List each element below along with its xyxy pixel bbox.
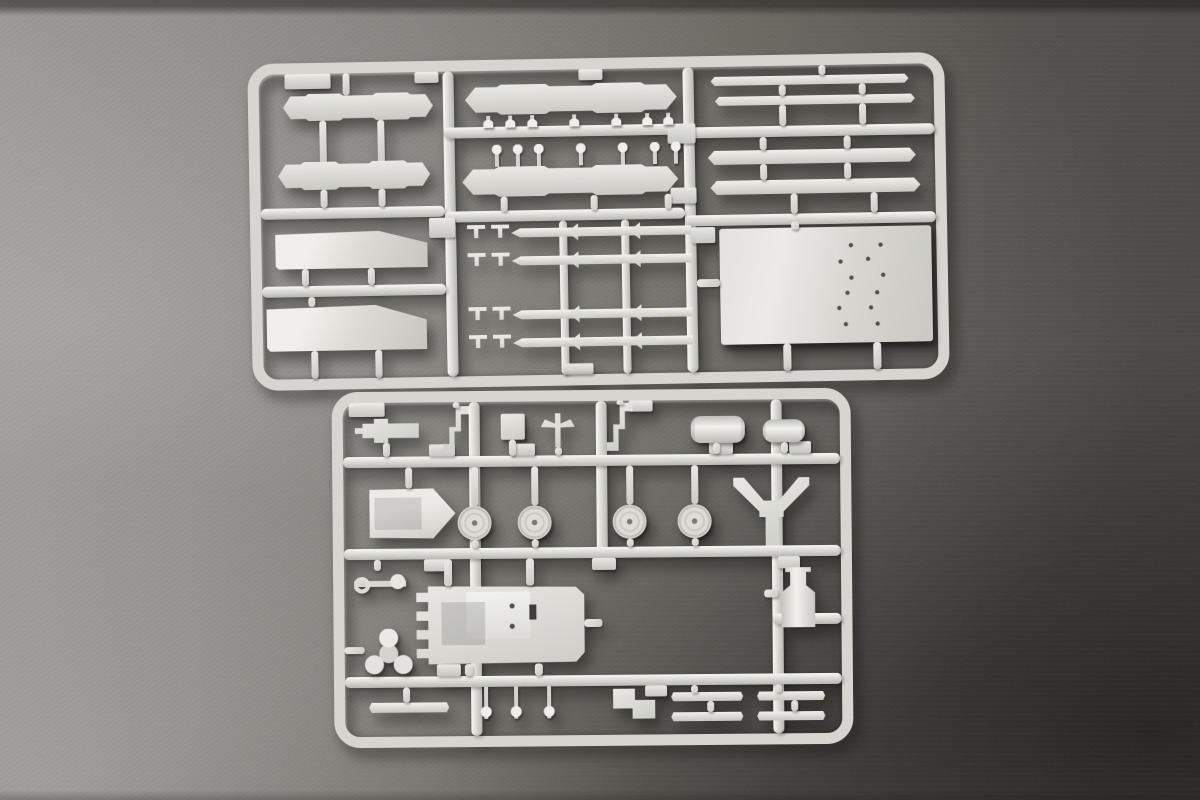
stem-part (378, 189, 385, 207)
hook-and-ring-part (354, 571, 406, 597)
stem-part (791, 222, 799, 230)
tab-part (691, 227, 715, 243)
stem-part (692, 538, 699, 546)
pinb-part (505, 115, 515, 127)
stem-part (627, 539, 634, 547)
stem-part (775, 684, 782, 692)
road-wheel-part (677, 504, 711, 538)
stem-part (791, 194, 798, 214)
track-guard-part (283, 92, 433, 122)
beam-part (369, 702, 449, 713)
pinb-part (663, 113, 673, 125)
stem-part (617, 401, 624, 405)
stem-part (691, 465, 698, 504)
small-tank-part (763, 419, 805, 442)
stowage-box-part (501, 414, 525, 440)
tab-part (563, 363, 593, 375)
missile-body-part (513, 307, 693, 319)
stem-part (859, 83, 866, 94)
stem-part (345, 647, 365, 654)
tab-part (437, 664, 461, 676)
stem-part (302, 269, 309, 286)
missile-body-part (512, 253, 692, 265)
stem-part (311, 351, 318, 379)
deck-slab-part (465, 82, 677, 116)
photo-of-model-kit-sprues: Overhead photo of two light-gray injecti… (0, 0, 1200, 800)
stem-part (374, 560, 381, 571)
stem-part (707, 701, 714, 712)
three-lobe-hub-part (365, 629, 413, 675)
pinb-part (611, 114, 621, 126)
rail-part (671, 712, 743, 722)
stem-part (509, 440, 516, 456)
tab-part (670, 187, 696, 203)
stem-part (377, 120, 385, 163)
stem-part (691, 685, 698, 693)
tpin-part (469, 335, 487, 348)
corner-tab-part (349, 403, 385, 417)
tpin-part (492, 253, 510, 266)
stem-part (526, 559, 534, 586)
missile-fin-part (631, 332, 657, 349)
stem-part (779, 105, 786, 126)
stem-part (444, 559, 452, 586)
stem-part (375, 350, 382, 378)
tpin-part (468, 307, 486, 320)
headed-pin-part (542, 686, 556, 718)
stem-part (472, 540, 479, 548)
tpin-part (467, 225, 485, 238)
stem-part (859, 103, 866, 124)
rail-part (671, 692, 743, 702)
curved-arm-part (443, 406, 469, 452)
stem-part (764, 589, 778, 597)
runner (621, 219, 632, 373)
hull-side-slab-part (266, 304, 427, 352)
hull-side-slab-part (275, 230, 428, 270)
air-cleaner-part (691, 416, 745, 443)
stem-part (471, 467, 478, 506)
runner (343, 453, 840, 468)
road-wheel-part (517, 505, 551, 539)
runner (559, 221, 570, 375)
deck-slab-part (462, 164, 678, 198)
rail-part (757, 711, 825, 721)
ventilator-part (778, 567, 819, 627)
runner (261, 206, 445, 220)
runner (262, 284, 446, 298)
stem-part (532, 539, 539, 547)
stem-part (844, 163, 851, 179)
stem-part (873, 342, 881, 369)
stem-part (871, 192, 878, 212)
stem-part (465, 664, 473, 676)
rail-part (757, 691, 825, 701)
anchor-arm-part (541, 413, 575, 447)
pin-part (576, 143, 586, 165)
missile-fin-part (630, 304, 656, 321)
curved-arm-part (607, 403, 633, 451)
stem-part (584, 619, 602, 627)
missile-body-part (513, 335, 693, 347)
stem-part (308, 297, 315, 307)
pin-part (618, 142, 628, 164)
tpin-part (493, 335, 511, 348)
stem-part (320, 190, 327, 208)
corner-tab-part (284, 74, 330, 90)
plank-part (710, 74, 908, 86)
missile-body-part (511, 225, 691, 237)
hull-casemate-part (416, 585, 585, 664)
stem-part (779, 85, 786, 96)
stem-part (844, 136, 851, 149)
stem-part (665, 194, 672, 209)
bottom-sprue (331, 388, 853, 749)
runner (443, 124, 683, 139)
fender-strip-part (708, 147, 916, 165)
tab-part (414, 72, 438, 83)
tool-bracket-part (355, 419, 419, 444)
headed-pin-part (509, 687, 523, 719)
pin-part (492, 145, 502, 167)
hull-roof-plate-part (719, 225, 933, 345)
missile-fin-part (629, 222, 655, 239)
missile-fin-part (569, 333, 595, 350)
runner (685, 211, 936, 226)
missile-fin-part (630, 250, 656, 267)
pinb-part (483, 116, 493, 128)
stem-part (531, 466, 538, 505)
pinb-part (527, 115, 537, 127)
missile-fin-part (568, 251, 594, 268)
headed-pin-part (479, 687, 493, 719)
pinb-part (642, 113, 652, 125)
stem-part (818, 65, 825, 75)
runner (683, 123, 934, 138)
stem-part (791, 700, 798, 711)
missile-fin-part (567, 223, 593, 240)
stem-part (319, 121, 327, 164)
stem-part (783, 344, 791, 371)
tab-part (578, 69, 602, 80)
stem-part (368, 268, 375, 285)
tpin-part (491, 225, 509, 238)
tab-part (429, 218, 455, 238)
stem-part (405, 468, 412, 489)
tab-part (778, 556, 800, 568)
tab-part (645, 685, 667, 696)
stem-part (555, 447, 562, 455)
runner (345, 673, 842, 688)
stem-part (760, 137, 767, 150)
stem-part (453, 402, 460, 408)
pin-part (650, 142, 660, 164)
road-wheel-part (612, 505, 646, 539)
tab-part (592, 558, 616, 570)
tpin-part (492, 307, 510, 320)
top-sprue (247, 52, 950, 391)
superstructure-box-part (369, 488, 455, 539)
pin-part (671, 142, 681, 164)
plank-part (715, 93, 915, 105)
missile-fin-part (568, 305, 594, 322)
stem-part (535, 663, 543, 675)
stem-part (501, 197, 508, 212)
fender-strip-part (710, 177, 920, 195)
tab-part (789, 441, 811, 453)
pin-part (513, 144, 523, 166)
road-wheel-part (457, 506, 491, 540)
runner (596, 401, 608, 558)
stem-part (383, 443, 390, 457)
stem-part (713, 443, 720, 454)
tpin-part (468, 253, 486, 266)
stem-part (626, 466, 633, 505)
pin-part (534, 144, 544, 166)
pinb-part (569, 114, 579, 126)
stem-part (342, 73, 349, 95)
stem-part (403, 688, 410, 703)
stem-part (760, 164, 767, 180)
track-guard-part (278, 160, 430, 191)
stem-part (697, 279, 720, 287)
stem-part (591, 195, 598, 210)
stem-part (781, 442, 788, 453)
